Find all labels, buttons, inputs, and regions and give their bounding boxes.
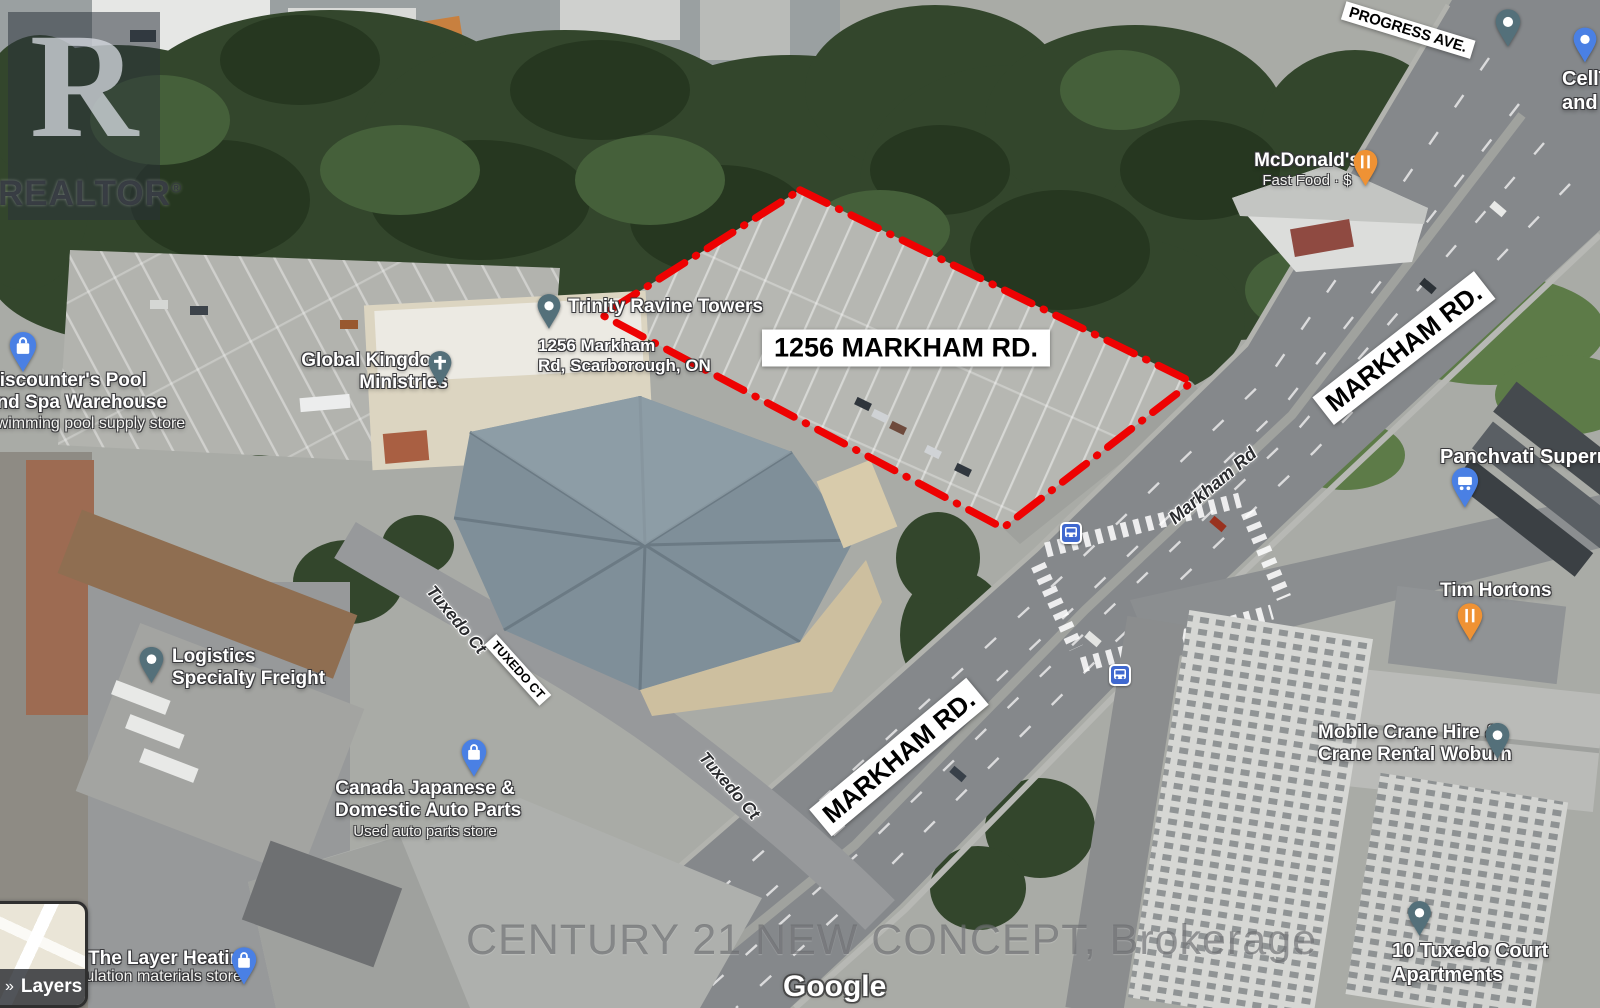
apts-line2: Apartments [1392, 964, 1548, 988]
google-logo: Google [783, 970, 886, 1004]
logistics-pin-icon[interactable] [138, 644, 165, 686]
poi-label-layer-heating-sub: Insulation materials store [64, 968, 242, 987]
cell-line2: and l [1562, 92, 1600, 116]
realtor-r-logo: R [8, 4, 160, 169]
auto-parts-line2: Domestic Auto Parts [335, 800, 515, 822]
layers-chevron-icon: » [5, 978, 14, 996]
logistics-line1: Logistics [172, 646, 325, 668]
panchvati-pin-icon[interactable] [1450, 465, 1480, 510]
layers-bar[interactable]: » Layers [0, 969, 85, 1005]
address-line2: Rd, Scarborough, ON [538, 356, 711, 376]
address-line1: 1256 Markham [538, 336, 711, 356]
poi-label-property-address: 1256 Markham Rd, Scarborough, ON [538, 336, 711, 376]
layers-label: Layers [21, 976, 82, 998]
discounters-line2: and Spa Warehouse [0, 392, 185, 414]
tim-hortons-pin-icon[interactable] [1456, 600, 1484, 644]
poi-label-trinity: Trinity Ravine Towers [568, 296, 763, 318]
auto-parts-pin-icon[interactable] [460, 738, 488, 778]
poi-label-global-kingdom: Global Kingdom Ministries [250, 350, 448, 395]
crane-line2: Crane Rental Woburn [1318, 744, 1483, 766]
poi-label-cell-store: CellT and l [1562, 68, 1600, 115]
brokerage-watermark: CENTURY 21 NEW CONCEPT, Brokerage [466, 916, 1317, 965]
registered-trademark-symbol: ® [171, 179, 182, 195]
mobile-crane-pin-icon[interactable] [1484, 720, 1511, 762]
tuxedo-apartments-pin-icon[interactable] [1406, 900, 1433, 937]
aerial-listing-image: R REALTOR® PROGRESS AVE. MARKHAM RD. MAR… [0, 0, 1600, 1008]
realtor-text: REALTOR [0, 174, 171, 213]
trinity-pin-icon[interactable] [536, 293, 562, 330]
auto-parts-line1: Canada Japanese & [335, 778, 515, 800]
mcdonalds-pin-icon[interactable] [1352, 148, 1379, 188]
layers-button[interactable]: » Layers [0, 901, 88, 1008]
bus-stop-icon[interactable] [1060, 522, 1082, 544]
bus-stop-icon[interactable] [1109, 664, 1131, 686]
discounters-sub: Swimming pool supply store [0, 415, 185, 434]
gkm-line1: Global Kingdom [250, 350, 448, 372]
church-pin-icon[interactable] [427, 350, 453, 387]
poi-label-mobile-crane: Mobile Crane Hire & Crane Rental Woburn [1318, 722, 1483, 767]
poi-label-tuxedo-apartments: 10 Tuxedo Court Apartments [1392, 940, 1548, 987]
cell-store-pin-icon[interactable] [1572, 26, 1598, 64]
progress-pin-icon[interactable] [1494, 8, 1522, 48]
poi-label-discounters: Discounter's Pool and Spa Warehouse Swim… [0, 370, 185, 434]
crane-line1: Mobile Crane Hire & [1318, 722, 1483, 744]
cell-line1: CellT [1562, 68, 1600, 92]
apts-line1: 10 Tuxedo Court [1392, 940, 1548, 964]
auto-parts-sub: Used auto parts store [335, 823, 515, 841]
logistics-line2: Specialty Freight [172, 668, 325, 690]
layer-heating-pin-icon[interactable] [230, 946, 258, 986]
property-address-box: 1256 MARKHAM RD. [762, 330, 1050, 367]
gkm-line2: Ministries [250, 372, 448, 394]
poi-label-auto-parts: Canada Japanese & Domestic Auto Parts Us… [335, 778, 515, 841]
realtor-wordmark: REALTOR® [0, 174, 188, 214]
poi-label-logistics: Logistics Specialty Freight [172, 646, 325, 691]
discounters-pin-icon[interactable] [8, 330, 38, 374]
realtor-watermark: R REALTOR® [8, 12, 160, 220]
